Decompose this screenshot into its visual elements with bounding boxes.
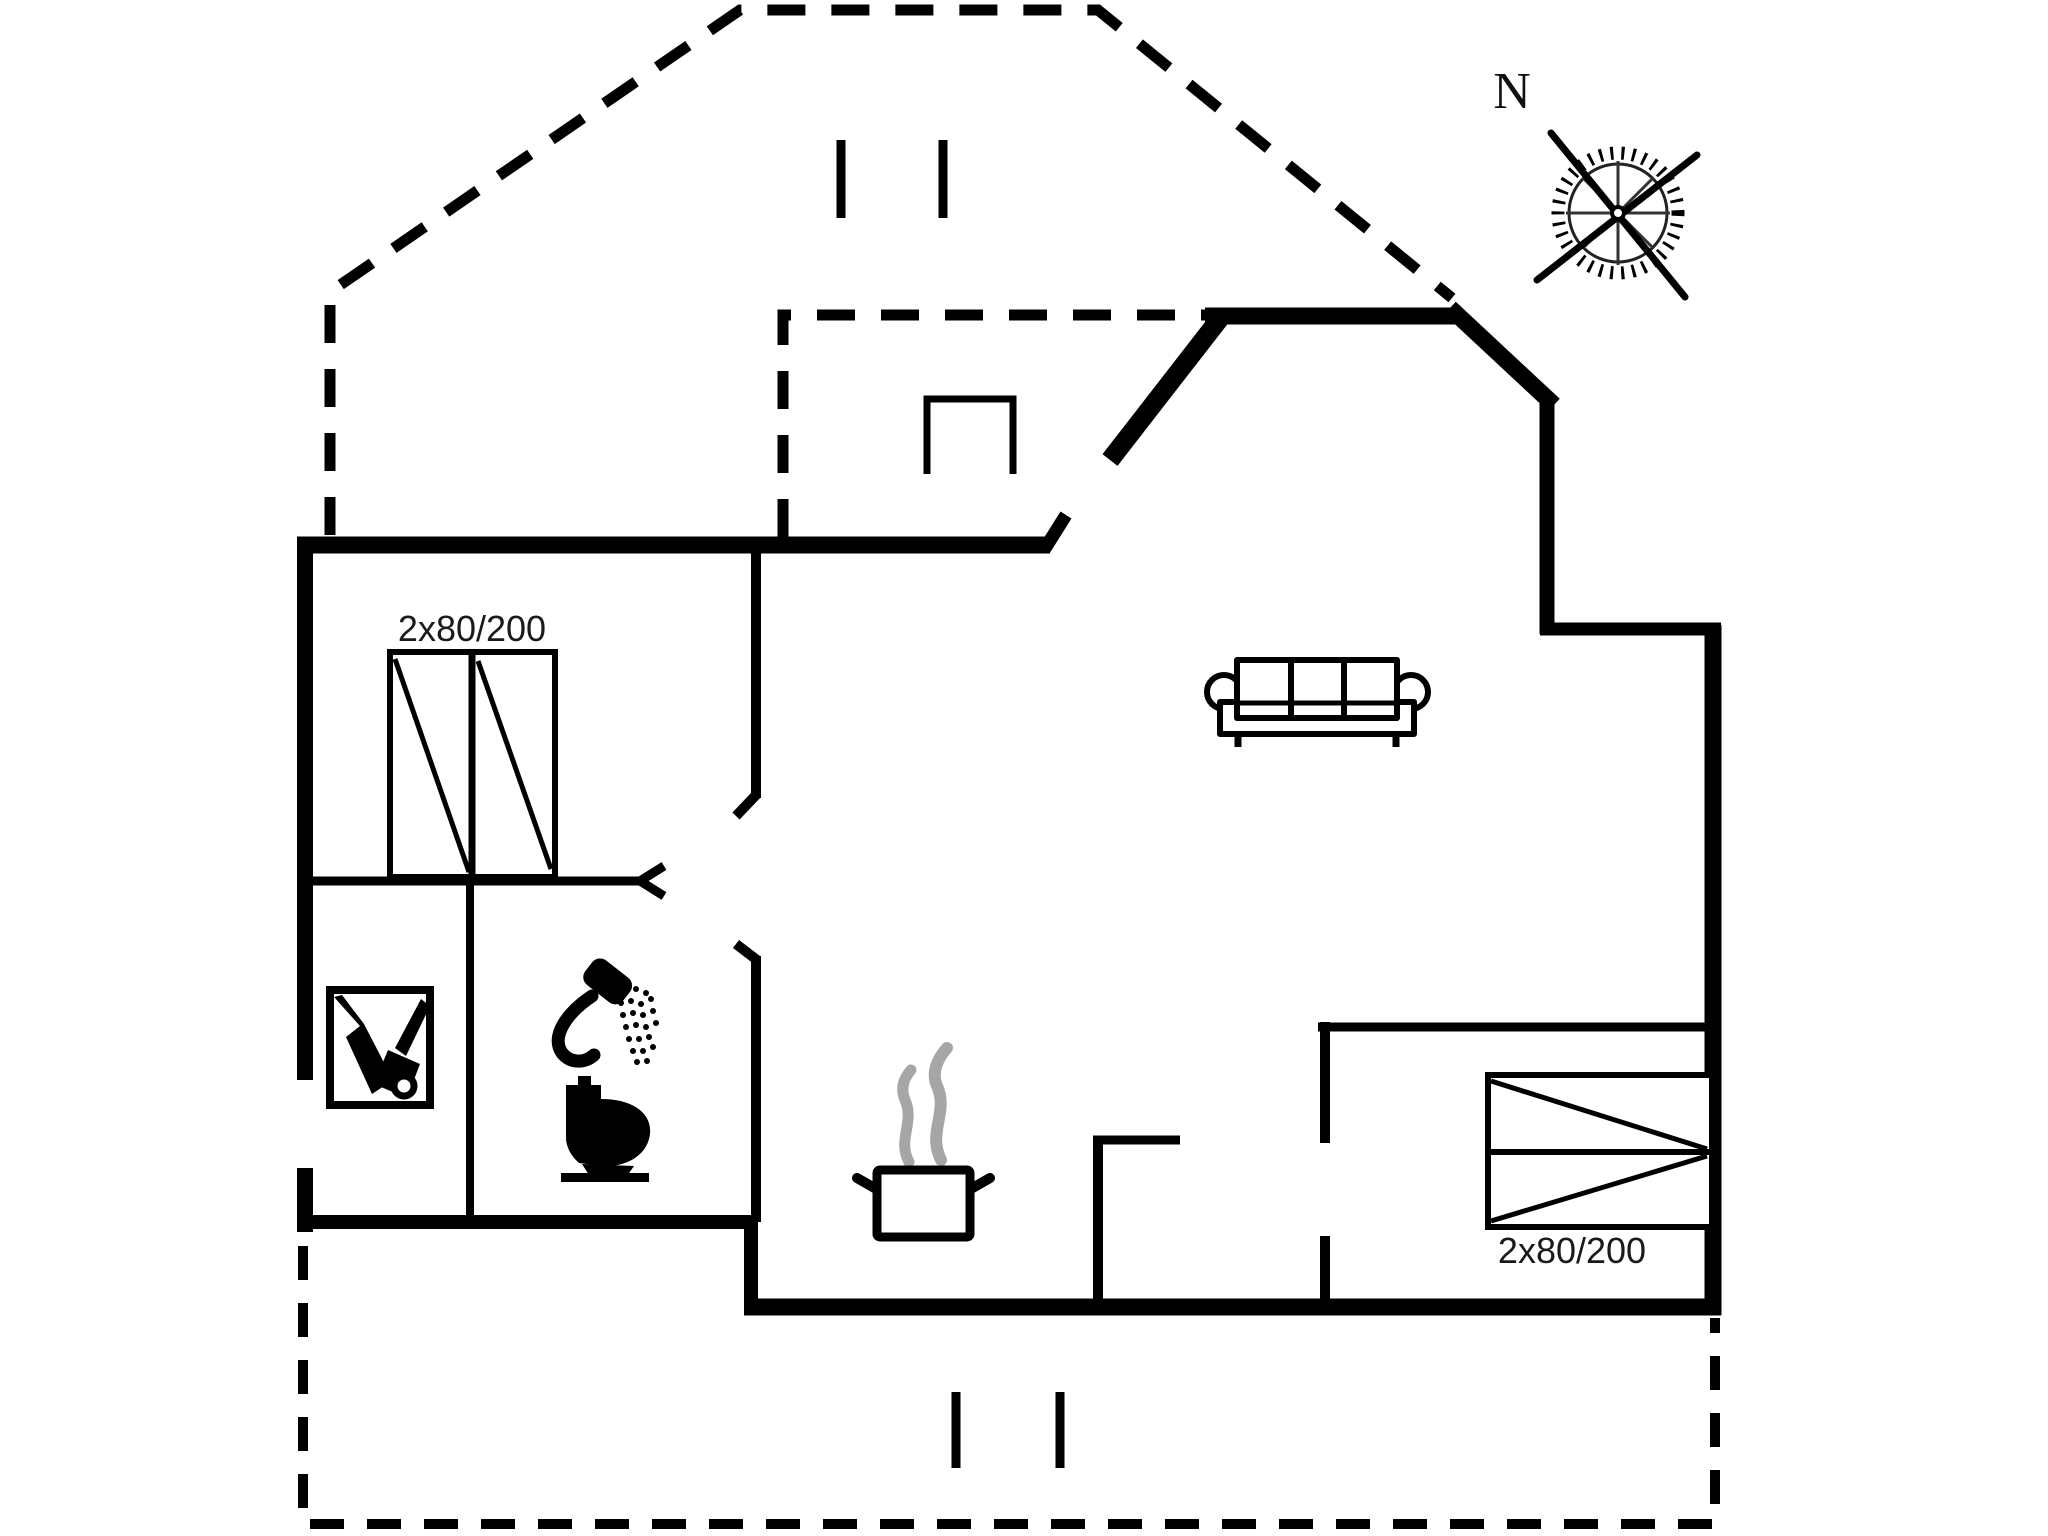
double-bed-top-left-icon bbox=[390, 652, 555, 877]
bed-size-label-bottom-right: 2x80/200 bbox=[1498, 1230, 1646, 1271]
toilet-icon bbox=[561, 1076, 650, 1182]
wood-stove-icon bbox=[927, 399, 1013, 474]
steam-wisp bbox=[903, 1070, 911, 1162]
terrace-step-marks bbox=[841, 140, 1060, 1468]
compass-north-label: N bbox=[1493, 63, 1531, 120]
double-bed-bottom-right-icon bbox=[1488, 1075, 1712, 1227]
cooking-pot-icon bbox=[857, 1048, 990, 1237]
shower-icon bbox=[558, 954, 659, 1065]
bed-size-label-top-left: 2x80/200 bbox=[398, 608, 546, 649]
sofa-icon bbox=[1207, 660, 1428, 747]
compass-rose-icon bbox=[1537, 133, 1697, 297]
roof-gable-dashed-outline bbox=[330, 10, 1452, 535]
south-terrace-dashed-outline bbox=[303, 1246, 1715, 1524]
wardrobe-icon bbox=[330, 990, 430, 1105]
steam-wisp bbox=[935, 1048, 947, 1160]
floor-plan-drawing: 2x80/200 2x80/200 bbox=[0, 0, 2048, 1536]
floor-plan-page: 2x80/200 2x80/200 bbox=[0, 0, 2048, 1536]
